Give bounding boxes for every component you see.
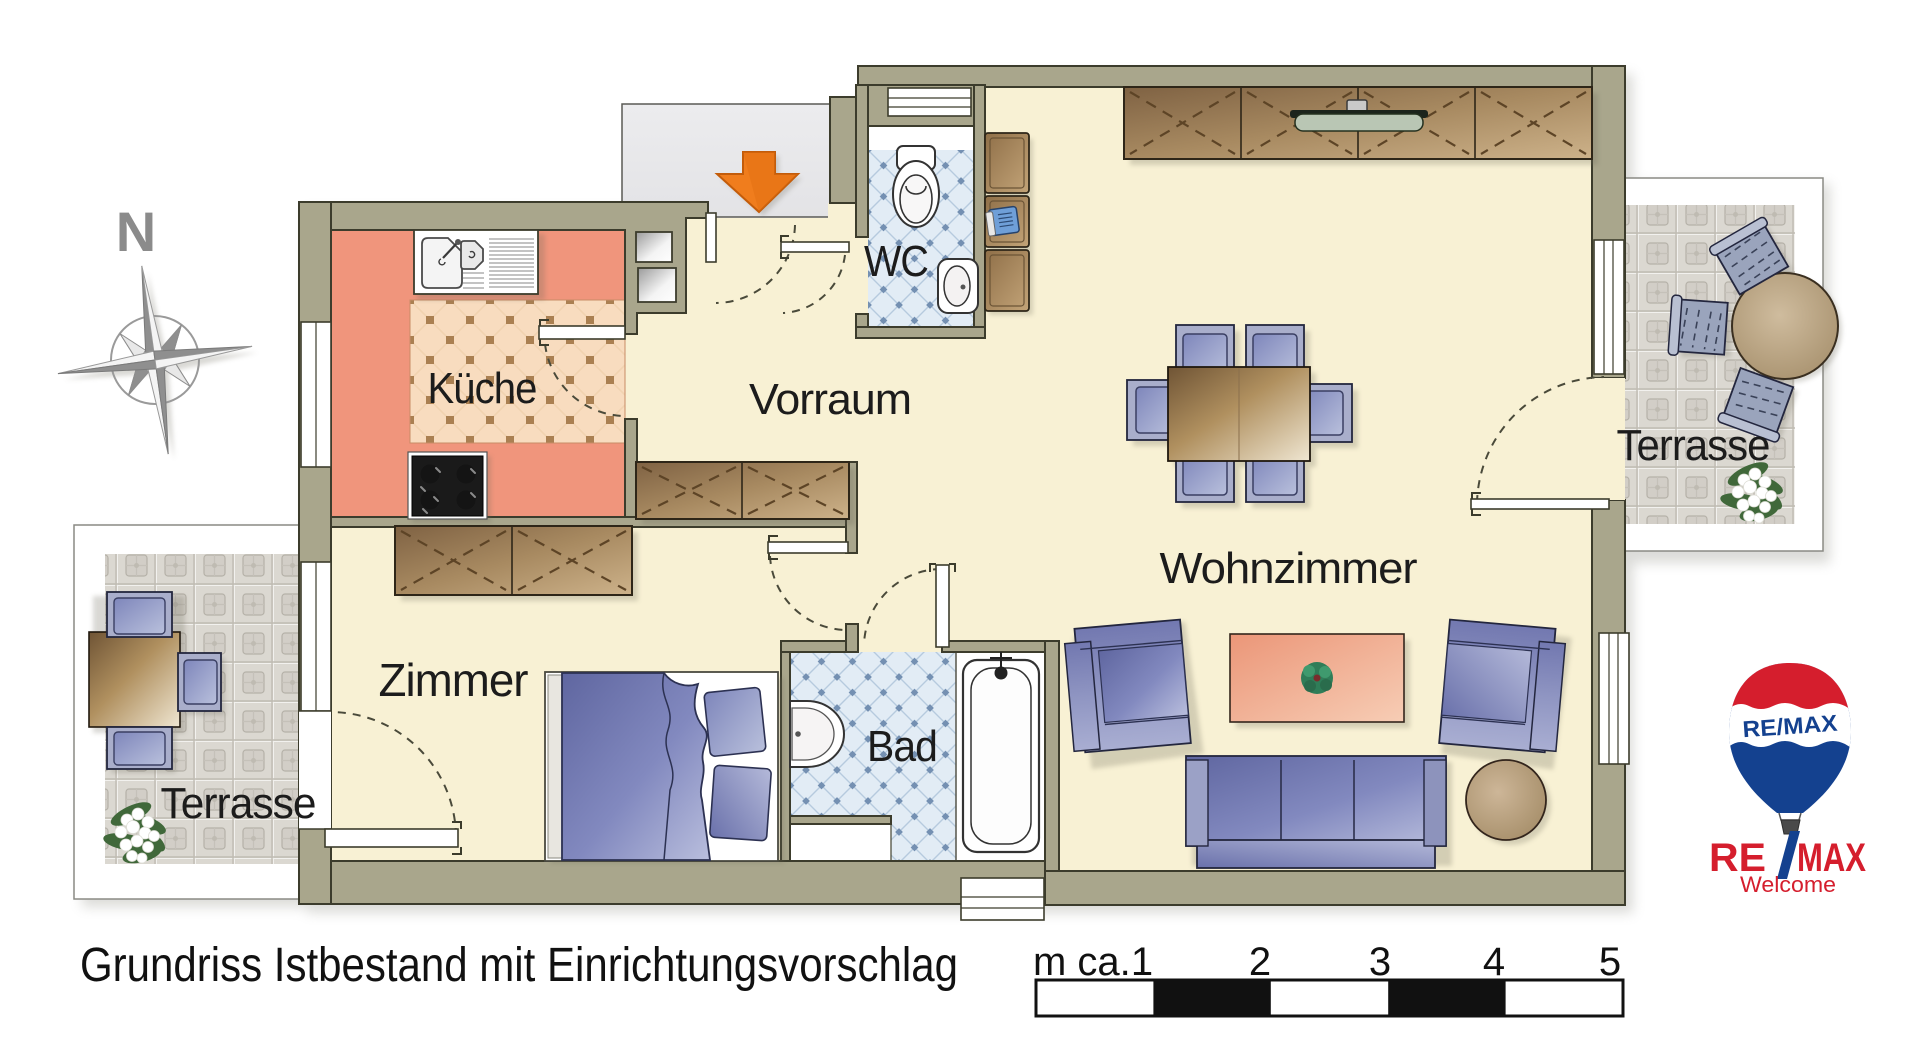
svg-text:Terrasse: Terrasse xyxy=(1617,421,1770,470)
svg-text:Bad: Bad xyxy=(867,722,937,771)
svg-text:N: N xyxy=(116,200,156,263)
svg-text:m ca.: m ca. xyxy=(1033,940,1131,984)
svg-text:Küche: Küche xyxy=(428,364,537,413)
svg-text:Terrasse: Terrasse xyxy=(161,779,316,828)
svg-text:WC: WC xyxy=(864,237,928,286)
svg-text:Vorraum: Vorraum xyxy=(749,375,911,424)
svg-text:Wohnzimmer: Wohnzimmer xyxy=(1160,544,1417,593)
svg-text:2: 2 xyxy=(1249,940,1271,984)
svg-text:1: 1 xyxy=(1131,940,1153,984)
svg-text:3: 3 xyxy=(1369,940,1391,984)
svg-text:4: 4 xyxy=(1483,940,1505,984)
svg-text:Zimmer: Zimmer xyxy=(379,654,529,706)
svg-text:5: 5 xyxy=(1599,940,1621,984)
svg-text:Grundriss Istbestand mit Einri: Grundriss Istbestand mit Einrichtungsvor… xyxy=(80,939,958,992)
svg-text:Welcome: Welcome xyxy=(1740,872,1836,897)
